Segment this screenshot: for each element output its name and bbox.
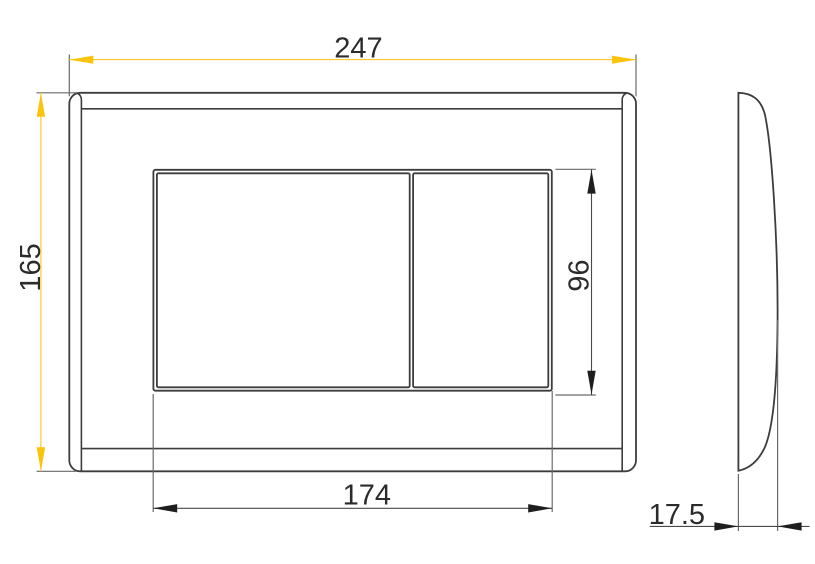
svg-text:247: 247 [334,32,382,64]
svg-text:165: 165 [15,243,47,291]
svg-text:96: 96 [564,259,596,291]
svg-text:174: 174 [343,480,391,512]
svg-text:17.5: 17.5 [649,499,705,531]
